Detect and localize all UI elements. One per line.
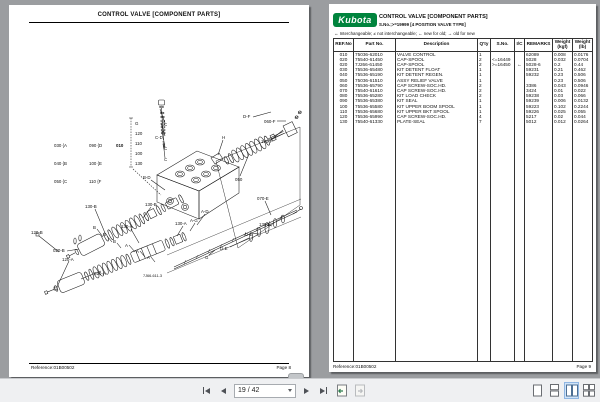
footer-rule <box>29 363 289 364</box>
kit-legend-item: 110 {F <box>89 179 102 184</box>
diagram-callout: 130-F <box>261 139 273 144</box>
diagram-callout: C <box>164 122 167 127</box>
page-number-label: Page 8 <box>276 365 291 370</box>
figure-code: 7J66-611-3 <box>143 274 162 278</box>
weight-lb-header-line2: (lb) <box>573 45 592 50</box>
next-view-icon <box>353 384 366 398</box>
page-number-box[interactable]: 19 / 42 <box>234 384 296 398</box>
table-filler-row <box>334 124 593 362</box>
diagram-callout: 120-A <box>62 257 74 262</box>
last-page-button[interactable] <box>317 383 330 398</box>
diagram-callout: 070-E <box>257 196 269 201</box>
view-single-page-button[interactable] <box>530 382 545 399</box>
weight-kgf-header: Weight (kgf) <box>553 39 573 52</box>
reference-number: Reference:01B00502 <box>31 365 74 370</box>
diagram-callouts: C C-D C C H D-F 060-F 130-F 050 B-D 130-… <box>31 114 276 278</box>
diagram-callout: 020-A <box>94 271 106 276</box>
diagram-callout: D-E <box>245 232 253 237</box>
table-header-row: REF.No Part No. Description Q'ty S.No. I… <box>334 39 593 52</box>
diagram-callout: 020-B <box>53 248 65 253</box>
kit-legend-item: 090 {D <box>89 143 102 148</box>
sno-cell: >=16450 <box>491 62 515 67</box>
page-number-value: 19 / 42 <box>238 387 288 394</box>
diagram-callout: H <box>222 135 225 140</box>
bracket-item: 120 <box>135 131 143 136</box>
sno-header: S.No. <box>491 39 515 52</box>
description-header: Description <box>396 39 478 52</box>
diagram-callout: 120-B <box>31 230 43 235</box>
diagram-callout: A <box>136 249 139 254</box>
ref-no-header: REF.No <box>334 39 354 52</box>
kubota-logo: Kubota <box>333 13 377 27</box>
interchangeable-legend: ↔ Interchangeable; ≠ not interchangeable… <box>334 31 475 36</box>
previous-page-button[interactable] <box>217 383 230 398</box>
diagram-callout: A <box>125 243 128 248</box>
diagram-callout: A <box>147 255 150 260</box>
next-page-button[interactable] <box>300 383 313 398</box>
bracket-item: G <box>135 121 139 126</box>
bracket-item: 130 <box>135 161 143 166</box>
diagram-callout: 050 <box>235 177 243 182</box>
diagram-callout: 130-B <box>85 204 97 209</box>
diagram-callout: C-D <box>155 135 163 140</box>
kit-legend-item: 050 {C <box>54 179 67 184</box>
first-page-button[interactable] <box>200 383 213 398</box>
diagram-callout: B <box>93 225 96 230</box>
parts-table: REF.No Part No. Description Q'ty S.No. I… <box>333 38 593 362</box>
view-facing-pages-button[interactable] <box>564 382 579 399</box>
diagram-callout: A-D <box>201 209 209 214</box>
facing-continuous-icon <box>583 384 595 397</box>
last-page-icon <box>326 387 328 394</box>
previous-view-icon <box>335 384 348 398</box>
document-page-left: CONTROL VALVE [COMPONENT PARTS] <box>9 5 309 377</box>
diagram-callout: G <box>205 255 209 260</box>
diagram-callout: B <box>113 239 116 244</box>
bottom-toolbar: 19 / 42 <box>0 378 600 402</box>
weight-kgf-header-line2: (kgf) <box>553 45 572 50</box>
document-page-right: Kubota CONTROL VALVE [COMPONENT PARTS] S… <box>329 4 596 372</box>
page-number-label: Page 9 <box>576 364 591 369</box>
kit-legend-item: 100 {E <box>89 161 102 166</box>
diagram-callout: 060-F <box>264 119 276 124</box>
weight-lb-header: Weight (lb) <box>573 39 593 52</box>
bracket-ref-label: 010 <box>116 143 124 148</box>
diagram-callout: C <box>164 157 167 162</box>
view-facing-continuous-button[interactable] <box>581 382 596 399</box>
ic-header: I/C <box>515 39 525 52</box>
first-page-icon <box>203 387 205 394</box>
facing-pages-icon <box>566 384 578 397</box>
previous-view-button[interactable] <box>334 383 348 398</box>
serial-number-subtitle: S.No.;>=19999 [4 POSITION VALVE TYPE] <box>379 22 466 27</box>
kit-legend-item: 040 {B <box>54 161 67 166</box>
bracket-item: 100 <box>135 151 143 156</box>
next-view-button[interactable] <box>352 383 366 398</box>
diagram-callout: A-G <box>190 218 198 223</box>
page-title: CONTROL VALVE [COMPONENT PARTS] <box>379 14 488 20</box>
reference-number: Reference:01B00502 <box>333 364 376 369</box>
diagram-callout: C <box>164 146 167 151</box>
next-page-icon <box>304 388 309 394</box>
previous-page-icon <box>221 388 226 394</box>
diagram-callout: B-D <box>143 175 151 180</box>
diagram-callout: B <box>103 232 106 237</box>
exploded-diagram: C C-D C C H D-F 060-F 130-F 050 B-D 130-… <box>9 5 309 377</box>
pdf-viewer-window: CONTROL VALVE [COMPONENT PARTS] <box>0 0 600 402</box>
kit-legend-item: 030 {A <box>54 143 67 148</box>
bracket-item: 110 <box>135 141 143 146</box>
view-continuous-button[interactable] <box>547 382 562 399</box>
chevron-down-icon[interactable] <box>288 389 292 392</box>
remarks-header: REMARKS <box>525 39 553 52</box>
part-no-header: Part No. <box>354 39 396 52</box>
diagram-callout: 130-A <box>121 224 133 229</box>
continuous-pages-icon <box>549 384 560 397</box>
diagram-callout: 130-B <box>145 202 157 207</box>
qty-header: Q'ty <box>478 39 491 52</box>
single-page-icon <box>532 384 543 397</box>
diagram-callout: D-F <box>243 114 251 119</box>
diagram-callout: 130-A <box>175 221 187 226</box>
diagram-callout: 130-E <box>259 222 271 227</box>
diagram-callout: D-E <box>220 246 228 251</box>
